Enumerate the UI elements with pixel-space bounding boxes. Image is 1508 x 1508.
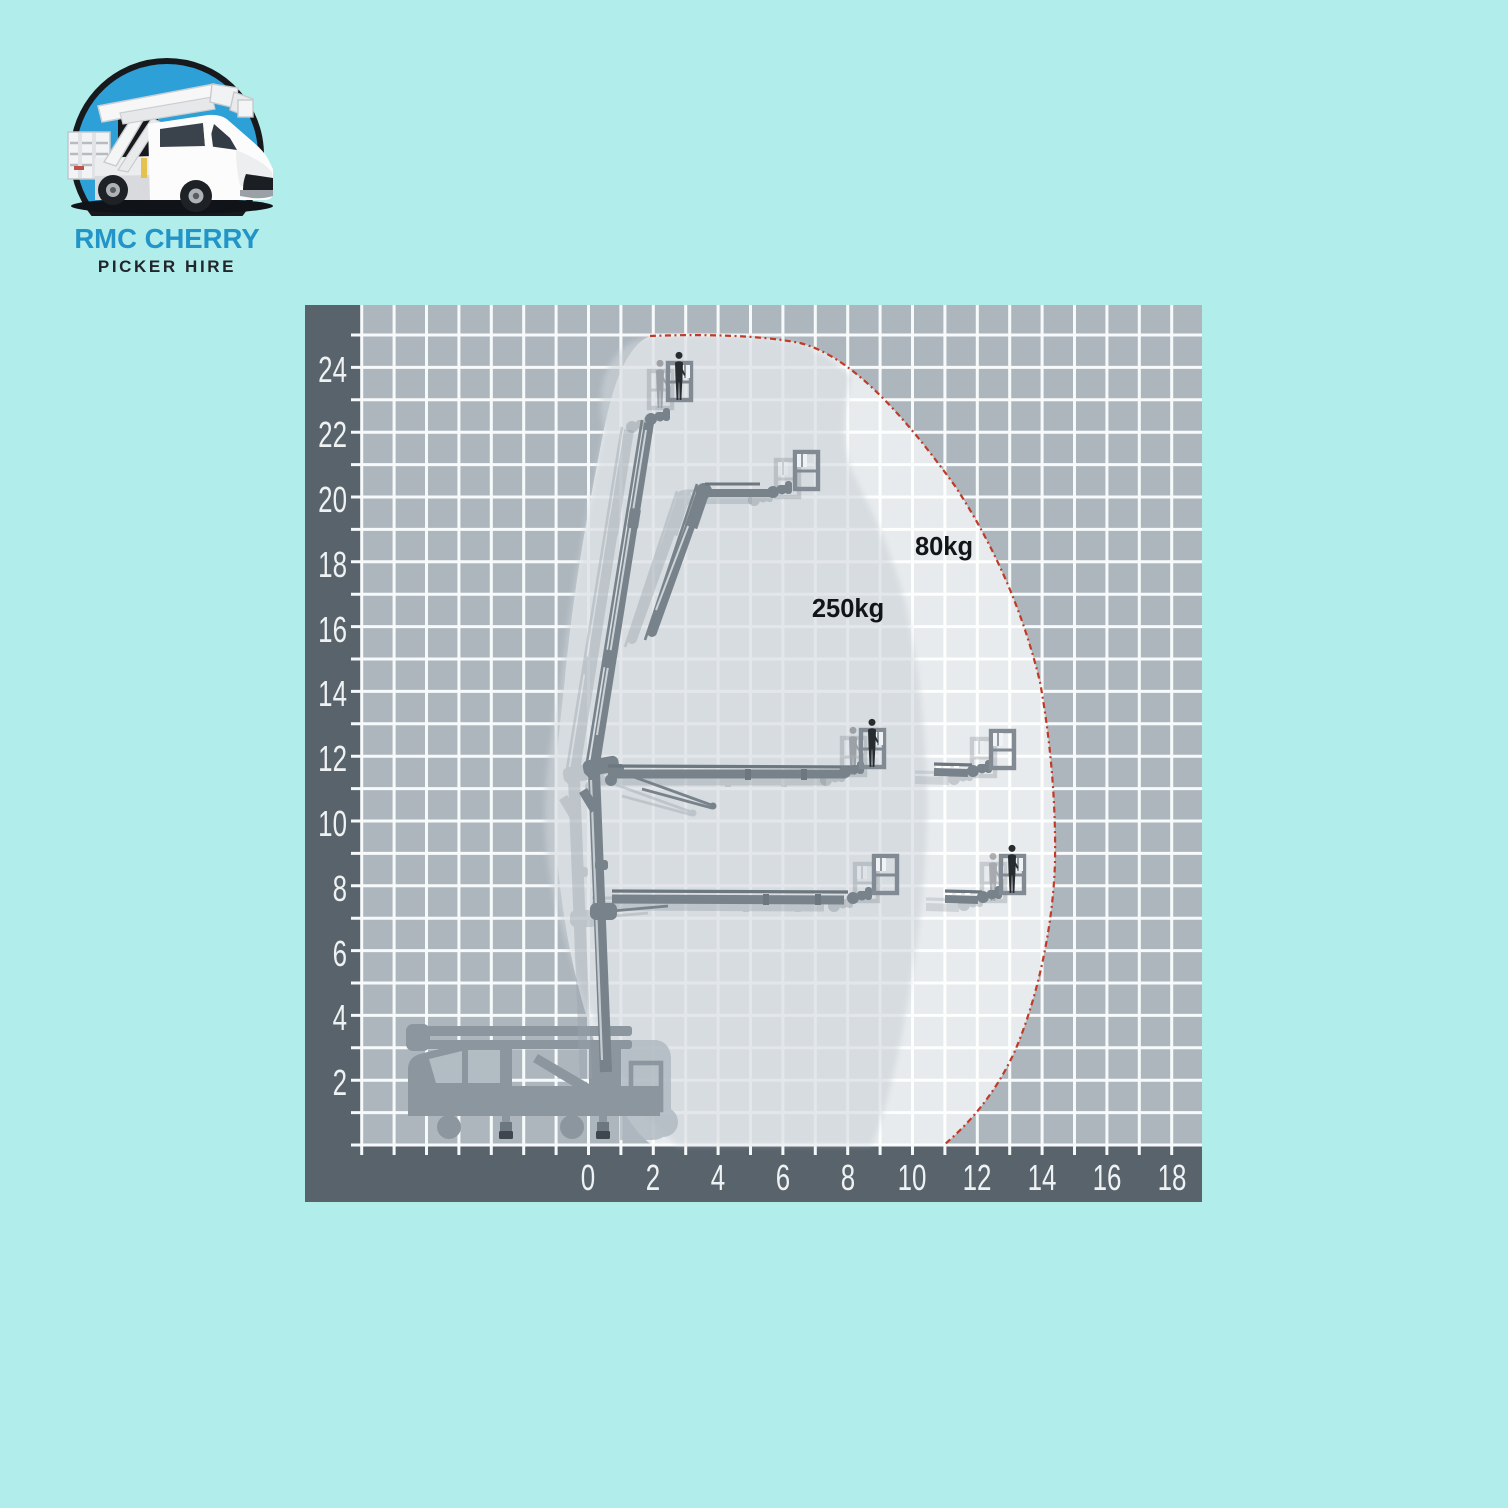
svg-text:6: 6 — [776, 1157, 790, 1199]
svg-text:2: 2 — [333, 1062, 347, 1104]
svg-text:14: 14 — [1028, 1157, 1057, 1199]
svg-text:16: 16 — [1093, 1157, 1122, 1199]
svg-text:250kg: 250kg — [812, 595, 884, 623]
svg-text:6: 6 — [333, 933, 347, 975]
svg-text:24: 24 — [318, 349, 347, 391]
svg-text:20: 20 — [318, 479, 347, 521]
svg-text:18: 18 — [318, 544, 347, 586]
svg-text:16: 16 — [318, 609, 347, 651]
svg-text:80kg: 80kg — [915, 533, 973, 561]
svg-text:12: 12 — [963, 1157, 992, 1199]
svg-text:PICKER HIRE: PICKER HIRE — [98, 257, 236, 276]
svg-text:8: 8 — [841, 1157, 855, 1199]
svg-text:10: 10 — [898, 1157, 927, 1199]
svg-text:10: 10 — [318, 803, 347, 845]
svg-text:0: 0 — [581, 1157, 595, 1199]
svg-text:8: 8 — [333, 868, 347, 910]
svg-text:4: 4 — [711, 1157, 725, 1199]
svg-text:2: 2 — [646, 1157, 660, 1199]
svg-text:RMC CHERRY: RMC CHERRY — [74, 223, 259, 254]
svg-text:12: 12 — [318, 738, 347, 780]
svg-text:4: 4 — [333, 997, 347, 1039]
svg-text:22: 22 — [318, 414, 347, 456]
svg-text:18: 18 — [1158, 1157, 1187, 1199]
svg-text:14: 14 — [318, 673, 347, 715]
